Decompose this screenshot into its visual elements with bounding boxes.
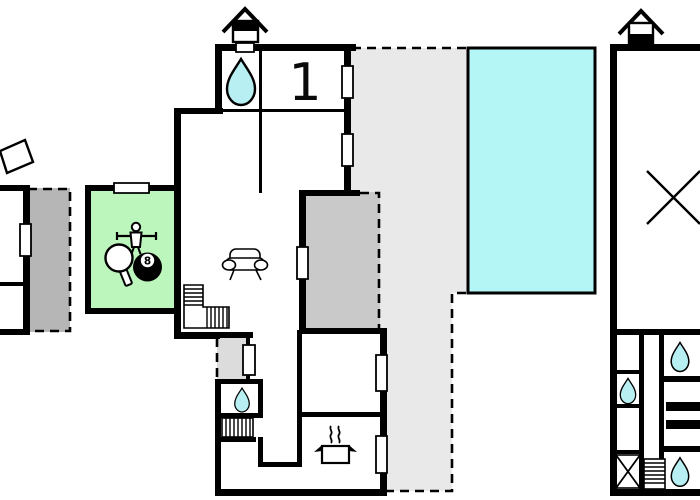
foosball-head <box>132 223 140 231</box>
side-annex-area <box>28 188 70 332</box>
eight-ball-number: 8 <box>144 256 151 268</box>
billiard-8ball-icon: 8 <box>133 253 162 282</box>
stairs-treads <box>226 418 250 437</box>
chimney-fill <box>233 21 258 31</box>
chimney-fill <box>629 34 653 44</box>
staircase-icon-right-building <box>644 459 665 489</box>
sofa-armrest <box>255 260 268 270</box>
swimming-pool <box>468 48 595 293</box>
floor-plan-canvas: 1 8 <box>0 0 700 500</box>
sofa-armrest <box>223 260 236 270</box>
staircase-icon-lower <box>222 418 253 437</box>
foosball-torso <box>131 233 142 248</box>
room-number-label: 1 <box>288 53 321 113</box>
stove-pot <box>322 446 349 463</box>
covered-annex-room <box>302 192 380 332</box>
paddle-blade <box>106 245 133 272</box>
